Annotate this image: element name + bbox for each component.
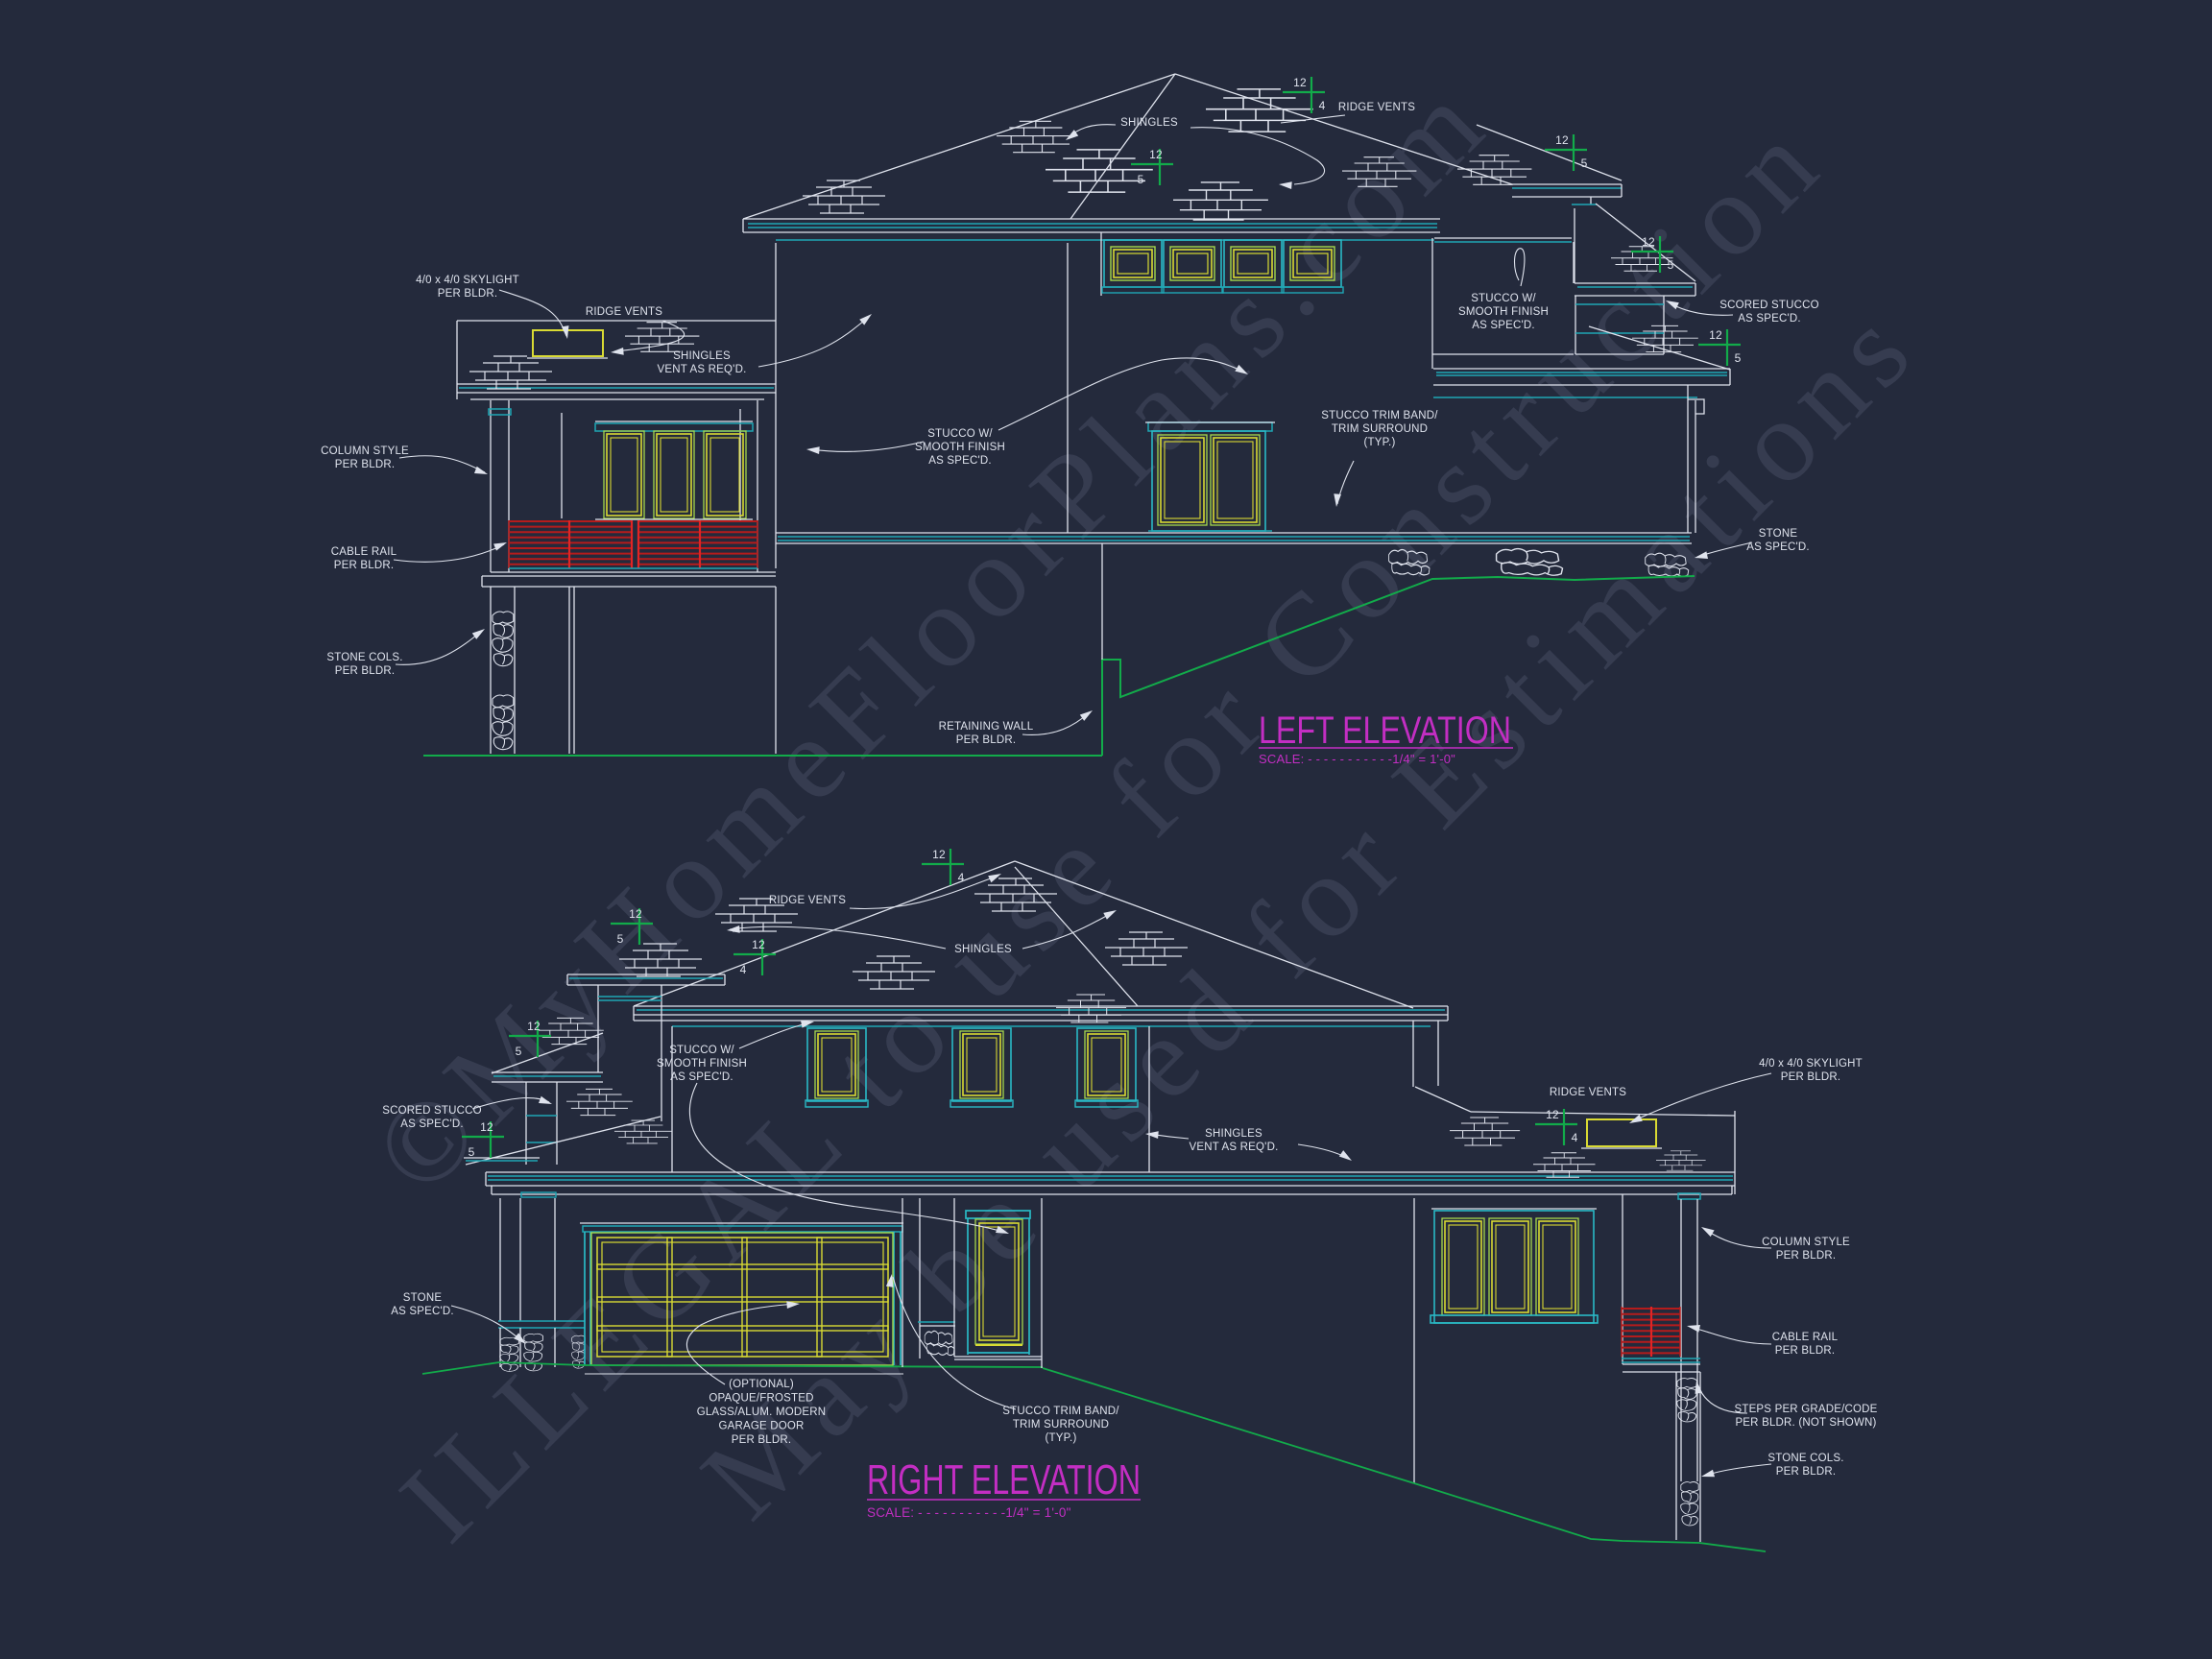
svg-text:PER BLDR.: PER BLDR. (335, 665, 396, 677)
svg-text:STEPS PER GRADE/CODE: STEPS PER GRADE/CODE (1734, 1404, 1877, 1415)
svg-text:TRIM SURROUND: TRIM SURROUND (1332, 423, 1428, 435)
svg-text:4: 4 (1572, 1131, 1578, 1144)
svg-text:12: 12 (1293, 76, 1307, 89)
svg-text:12: 12 (1555, 133, 1569, 147)
svg-text:12: 12 (1709, 328, 1722, 342)
svg-text:PER BLDR.: PER BLDR. (732, 1434, 792, 1446)
svg-text:5: 5 (1138, 173, 1144, 186)
svg-text:12: 12 (629, 907, 642, 921)
svg-text:STUCCO TRIM BAND/: STUCCO TRIM BAND/ (1321, 410, 1438, 421)
svg-text:12: 12 (1149, 148, 1163, 161)
svg-text:PER BLDR. (NOT SHOWN): PER BLDR. (NOT SHOWN) (1735, 1417, 1876, 1429)
svg-text:LEFT ELEVATION: LEFT ELEVATION (1259, 709, 1511, 752)
svg-text:5: 5 (1581, 156, 1588, 170)
svg-text:TRIM SURROUND: TRIM SURROUND (1013, 1419, 1109, 1431)
svg-text:AS SPEC'D.: AS SPEC'D. (391, 1306, 454, 1317)
svg-text:STUCCO W/: STUCCO W/ (927, 428, 993, 440)
svg-text:PER BLDR.: PER BLDR. (1776, 1250, 1837, 1262)
svg-text:12: 12 (480, 1120, 493, 1134)
svg-text:COLUMN STYLE: COLUMN STYLE (321, 445, 409, 457)
svg-text:GARAGE DOOR: GARAGE DOOR (718, 1421, 804, 1432)
svg-text:RIDGE VENTS: RIDGE VENTS (1338, 102, 1415, 113)
svg-text:AS SPEC'D.: AS SPEC'D. (928, 455, 992, 467)
svg-text:SCALE: - - - - - - - - - - -1: SCALE: - - - - - - - - - - -1/4" = 1'-0" (1259, 752, 1455, 766)
svg-text:12: 12 (527, 1020, 541, 1033)
svg-text:5: 5 (469, 1145, 475, 1159)
svg-text:SHINGLES: SHINGLES (954, 944, 1012, 955)
svg-text:5: 5 (1668, 258, 1674, 272)
svg-text:12: 12 (932, 848, 946, 861)
svg-text:RIDGE VENTS: RIDGE VENTS (586, 306, 662, 318)
svg-text:GLASS/ALUM. MODERN: GLASS/ALUM. MODERN (697, 1407, 827, 1418)
svg-text:SCALE: - - - - - - - - - - -1: SCALE: - - - - - - - - - - -1/4" = 1'-0" (867, 1505, 1071, 1520)
svg-text:12: 12 (1642, 235, 1655, 249)
svg-text:PER BLDR.: PER BLDR. (1781, 1071, 1841, 1083)
svg-text:4: 4 (740, 963, 747, 976)
svg-text:PER BLDR.: PER BLDR. (334, 560, 395, 571)
svg-text:RETAINING WALL: RETAINING WALL (939, 721, 1034, 733)
svg-text:SMOOTH FINISH: SMOOTH FINISH (657, 1058, 747, 1070)
svg-text:SCORED STUCCO: SCORED STUCCO (1719, 300, 1819, 311)
svg-text:STONE COLS.: STONE COLS. (1767, 1453, 1843, 1464)
svg-text:AS SPEC'D.: AS SPEC'D. (1746, 541, 1810, 553)
svg-text:5: 5 (516, 1045, 522, 1058)
svg-text:RIDGE VENTS: RIDGE VENTS (1550, 1087, 1626, 1098)
svg-text:PER BLDR.: PER BLDR. (438, 288, 498, 300)
svg-text:PER BLDR.: PER BLDR. (335, 459, 396, 470)
svg-text:STONE: STONE (1759, 528, 1798, 540)
svg-text:SMOOTH FINISH: SMOOTH FINISH (915, 442, 1005, 453)
svg-text:AS SPEC'D.: AS SPEC'D. (1738, 313, 1801, 325)
svg-text:SHINGLES: SHINGLES (1120, 117, 1178, 129)
svg-text:VENT AS REQ'D.: VENT AS REQ'D. (1190, 1142, 1279, 1153)
svg-text:OPAQUE/FROSTED: OPAQUE/FROSTED (709, 1393, 813, 1405)
svg-text:SMOOTH FINISH: SMOOTH FINISH (1458, 306, 1549, 318)
svg-text:SCORED STUCCO: SCORED STUCCO (382, 1105, 482, 1117)
svg-text:12: 12 (752, 938, 765, 951)
svg-text:4/0 x 4/0 SKYLIGHT: 4/0 x 4/0 SKYLIGHT (1759, 1058, 1863, 1070)
svg-text:AS SPEC'D.: AS SPEC'D. (400, 1118, 464, 1130)
svg-text:4: 4 (958, 871, 965, 884)
svg-text:4: 4 (1319, 99, 1326, 112)
svg-text:(TYP.): (TYP.) (1046, 1432, 1077, 1444)
svg-text:12: 12 (1546, 1108, 1559, 1121)
svg-text:COLUMN STYLE: COLUMN STYLE (1762, 1237, 1850, 1248)
svg-text:CABLE RAIL: CABLE RAIL (331, 546, 397, 558)
svg-text:STONE COLS.: STONE COLS. (326, 652, 402, 663)
svg-text:5: 5 (1735, 351, 1742, 365)
svg-text:STONE: STONE (403, 1292, 443, 1304)
svg-text:AS SPEC'D.: AS SPEC'D. (1472, 320, 1535, 331)
svg-text:5: 5 (617, 932, 624, 946)
svg-text:(TYP.): (TYP.) (1364, 437, 1396, 448)
svg-text:CABLE RAIL: CABLE RAIL (1772, 1332, 1839, 1343)
svg-text:STUCCO TRIM BAND/: STUCCO TRIM BAND/ (1002, 1406, 1119, 1417)
svg-text:RIDGE VENTS: RIDGE VENTS (769, 895, 846, 906)
svg-text:PER BLDR.: PER BLDR. (956, 734, 1017, 746)
svg-text:4/0 x 4/0 SKYLIGHT: 4/0 x 4/0 SKYLIGHT (416, 275, 519, 286)
svg-text:PER BLDR.: PER BLDR. (1775, 1345, 1836, 1357)
svg-text:(OPTIONAL): (OPTIONAL) (729, 1379, 794, 1390)
svg-text:SHINGLES: SHINGLES (1205, 1128, 1262, 1140)
svg-text:SHINGLES: SHINGLES (673, 350, 731, 362)
svg-text:VENT AS REQ'D.: VENT AS REQ'D. (658, 364, 747, 375)
svg-text:AS SPEC'D.: AS SPEC'D. (670, 1071, 733, 1083)
svg-text:STUCCO W/: STUCCO W/ (1471, 293, 1536, 304)
svg-text:PER BLDR.: PER BLDR. (1776, 1466, 1837, 1478)
svg-text:STUCCO W/: STUCCO W/ (669, 1045, 734, 1056)
svg-text:RIGHT ELEVATION: RIGHT ELEVATION (867, 1456, 1141, 1503)
